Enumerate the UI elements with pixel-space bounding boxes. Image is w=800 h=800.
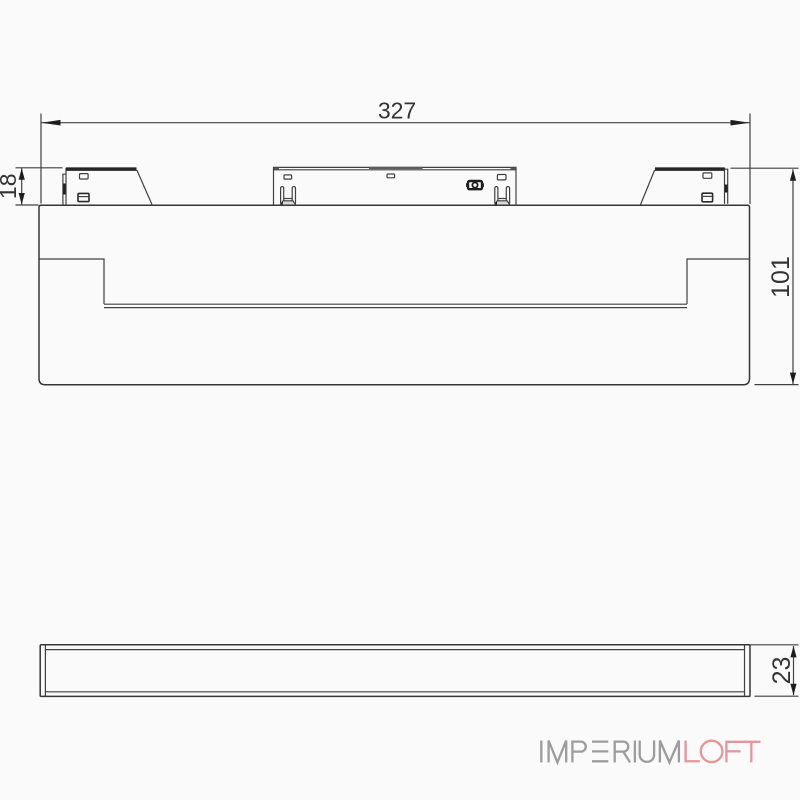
svg-text:327: 327 <box>378 97 416 123</box>
svg-text:18: 18 <box>0 174 21 200</box>
svg-text:23: 23 <box>768 657 796 685</box>
svg-text:101: 101 <box>767 256 795 298</box>
